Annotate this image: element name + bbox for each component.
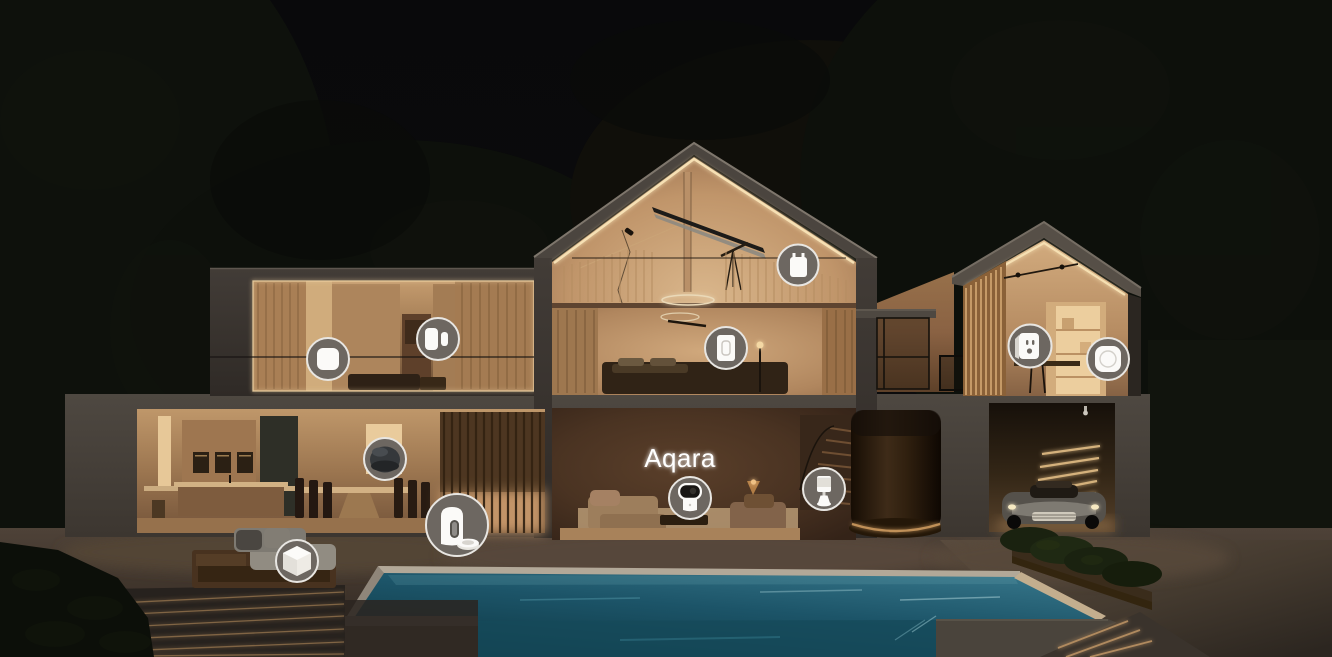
svg-text:Aqara: Aqara bbox=[644, 443, 716, 473]
